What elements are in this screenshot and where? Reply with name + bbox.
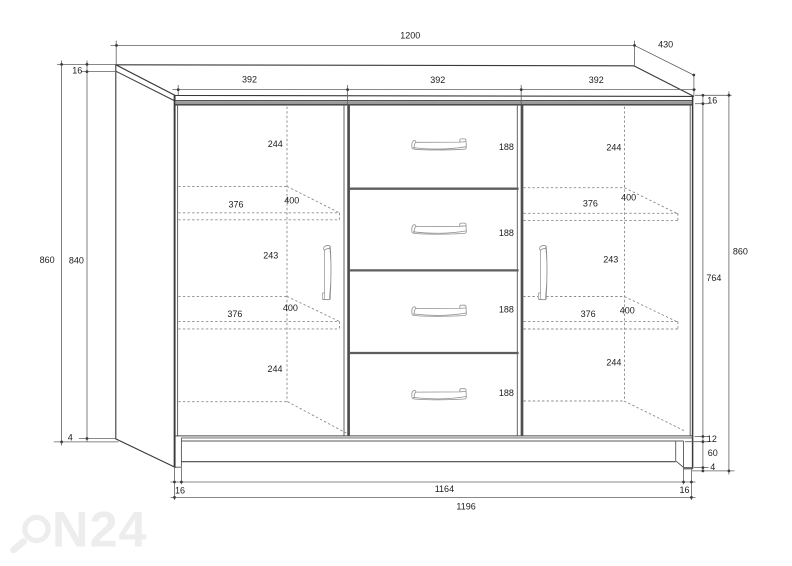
svg-text:188: 188 xyxy=(499,388,514,398)
svg-text:376: 376 xyxy=(583,199,598,209)
svg-text:392: 392 xyxy=(589,75,604,85)
svg-text:400: 400 xyxy=(620,305,635,315)
svg-text:4: 4 xyxy=(710,462,715,472)
svg-text:4: 4 xyxy=(68,433,73,443)
svg-text:392: 392 xyxy=(242,75,257,85)
svg-text:400: 400 xyxy=(283,303,298,313)
svg-text:840: 840 xyxy=(69,256,84,266)
svg-text:392: 392 xyxy=(430,75,445,85)
svg-text:1196: 1196 xyxy=(456,501,475,511)
svg-text:244: 244 xyxy=(606,142,621,152)
svg-text:244: 244 xyxy=(606,357,621,367)
svg-text:376: 376 xyxy=(227,309,242,319)
svg-text:376: 376 xyxy=(581,309,596,319)
svg-text:244: 244 xyxy=(268,139,283,149)
svg-text:16: 16 xyxy=(707,95,717,105)
svg-text:860: 860 xyxy=(733,246,748,256)
svg-text:16: 16 xyxy=(175,486,185,496)
svg-text:12: 12 xyxy=(707,434,717,444)
svg-text:860: 860 xyxy=(40,255,55,265)
svg-text:188: 188 xyxy=(499,305,514,315)
svg-text:16: 16 xyxy=(72,65,82,75)
svg-text:1200: 1200 xyxy=(400,30,420,40)
svg-text:N24: N24 xyxy=(52,501,148,558)
svg-text:243: 243 xyxy=(263,251,278,261)
svg-text:400: 400 xyxy=(621,192,636,202)
svg-text:430: 430 xyxy=(658,39,673,49)
svg-text:244: 244 xyxy=(267,364,282,374)
svg-text:1164: 1164 xyxy=(435,484,454,494)
svg-text:188: 188 xyxy=(499,228,514,238)
svg-text:188: 188 xyxy=(499,142,514,152)
svg-text:16: 16 xyxy=(679,485,689,495)
svg-text:764: 764 xyxy=(706,273,721,283)
svg-text:376: 376 xyxy=(228,200,243,210)
svg-text:400: 400 xyxy=(284,196,299,206)
svg-text:60: 60 xyxy=(708,448,718,458)
svg-text:243: 243 xyxy=(603,254,618,264)
